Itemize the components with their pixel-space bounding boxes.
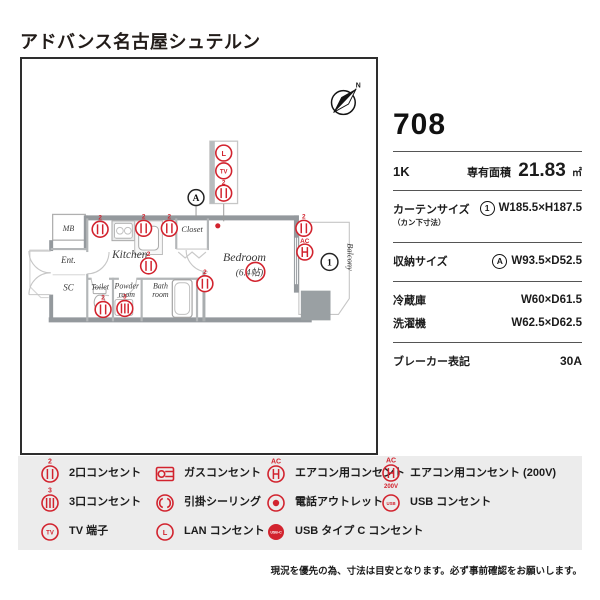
legend-item-usb-c: USB-C USB タイプ C コンセント [263, 513, 423, 547]
floor-plan-drawing: N Balcony [22, 59, 376, 453]
svg-text:USB: USB [386, 501, 395, 506]
svg-text:2: 2 [168, 213, 172, 220]
svg-text:room: room [119, 290, 136, 299]
window-tag-1: 1 [321, 254, 338, 271]
divider [393, 281, 582, 282]
legend-panel: 2 2口コンセント ガスコンセント AC [18, 456, 582, 550]
usb-c-outlet-icon: USB-C [263, 513, 289, 547]
svg-text:TV: TV [46, 530, 54, 536]
svg-text:AC: AC [386, 458, 396, 465]
disclaimer-note: 現況を優先の為、寸法は目安となります。必ず事前確認をお願いします。 [18, 563, 582, 577]
storage-tag-a: A [188, 190, 204, 218]
washer-label: 洗濯機 [393, 315, 426, 331]
svg-text:TV: TV [220, 169, 228, 175]
svg-text:2: 2 [98, 214, 102, 221]
mb-label: MB [62, 224, 75, 233]
divider [393, 242, 582, 243]
svg-text:3: 3 [48, 488, 52, 495]
divider [393, 190, 582, 191]
svg-text:L: L [163, 528, 168, 537]
svg-text:L: L [221, 149, 226, 158]
compass-icon: N [332, 83, 361, 115]
floor-plan-page: アドバンス名古屋シュテルン N Balcony [0, 0, 600, 600]
kitchen-label: Kitchen [111, 249, 148, 261]
layout-type: 1K [393, 164, 410, 179]
unit-info-panel: 708 1K 専有面積 21.83 ㎡ カーテンサイズ （カン下寸法） 1W18… [393, 110, 582, 369]
circled-1-tag: 1 [480, 201, 495, 216]
svg-text:1: 1 [327, 257, 332, 268]
bathtub-fixture [172, 280, 192, 318]
entrance-label: Ent. [60, 255, 76, 265]
bedroom-label: Bedroom [223, 250, 266, 264]
pillar [301, 291, 331, 321]
curtain-size-label: カーテンサイズ （カン下寸法） [393, 201, 470, 228]
room-number: 708 [393, 110, 582, 140]
toilet-label: Toilet [91, 283, 110, 292]
svg-text:2: 2 [147, 251, 151, 258]
lan-outlet-icon: L [216, 145, 232, 161]
svg-text:2: 2 [48, 459, 52, 466]
legend-item-lan: L LAN コンセント [152, 513, 265, 547]
divider [393, 342, 582, 343]
shoe-closet-label: SC [63, 283, 74, 293]
tv-outlet-icon: TV [216, 163, 232, 179]
room-labels: MB Ent. SC Kitchen Toilet Powder room Ba… [60, 224, 266, 299]
north-label: N [356, 83, 361, 90]
svg-text:2: 2 [302, 213, 306, 220]
svg-text:AC: AC [271, 459, 281, 466]
page-title: アドバンス名古屋シュテルン [20, 28, 261, 54]
outlet-2-icon: 2 [197, 269, 213, 292]
callout-anchor-dot [215, 223, 220, 228]
washer-value: W62.5×D62.5 [511, 317, 582, 329]
tv-outlet-icon: TV [37, 513, 63, 547]
fridge-value: W60×D61.5 [521, 294, 582, 306]
closet-label: Closet [181, 225, 203, 234]
kitchen-stove [112, 221, 135, 241]
lan-outlet-icon: L [152, 513, 178, 547]
storage-size-label: 収納サイズ [393, 253, 448, 269]
svg-text:USB-C: USB-C [270, 531, 282, 535]
circled-a-tag: A [492, 254, 507, 269]
svg-text:2: 2 [101, 295, 105, 302]
outlet-callout-box: L TV 2 [210, 141, 238, 228]
svg-text:A: A [193, 194, 200, 204]
breaker-label: ブレーカー表記 [393, 353, 470, 369]
curtain-size-value: 1W185.5×H187.5 [480, 201, 582, 216]
legend-item-tv: TV TV 端子 [37, 513, 108, 547]
svg-text:3: 3 [123, 294, 127, 301]
balcony-label: Balcony [345, 243, 354, 271]
storage-size-value: AW93.5×D52.5 [492, 254, 582, 269]
floor-plan-panel: N Balcony [20, 57, 378, 455]
divider [393, 151, 582, 152]
area-value: 専有面積 21.83 ㎡ [467, 160, 582, 182]
svg-text:room: room [152, 290, 169, 299]
bedroom-size-label: (6.4帖) [236, 267, 263, 278]
svg-text:2: 2 [142, 213, 146, 220]
fridge-label: 冷蔵庫 [393, 292, 426, 308]
ac-outlet-icon: AC [297, 238, 313, 260]
breaker-value: 30A [560, 354, 582, 368]
svg-text:2: 2 [203, 269, 207, 276]
